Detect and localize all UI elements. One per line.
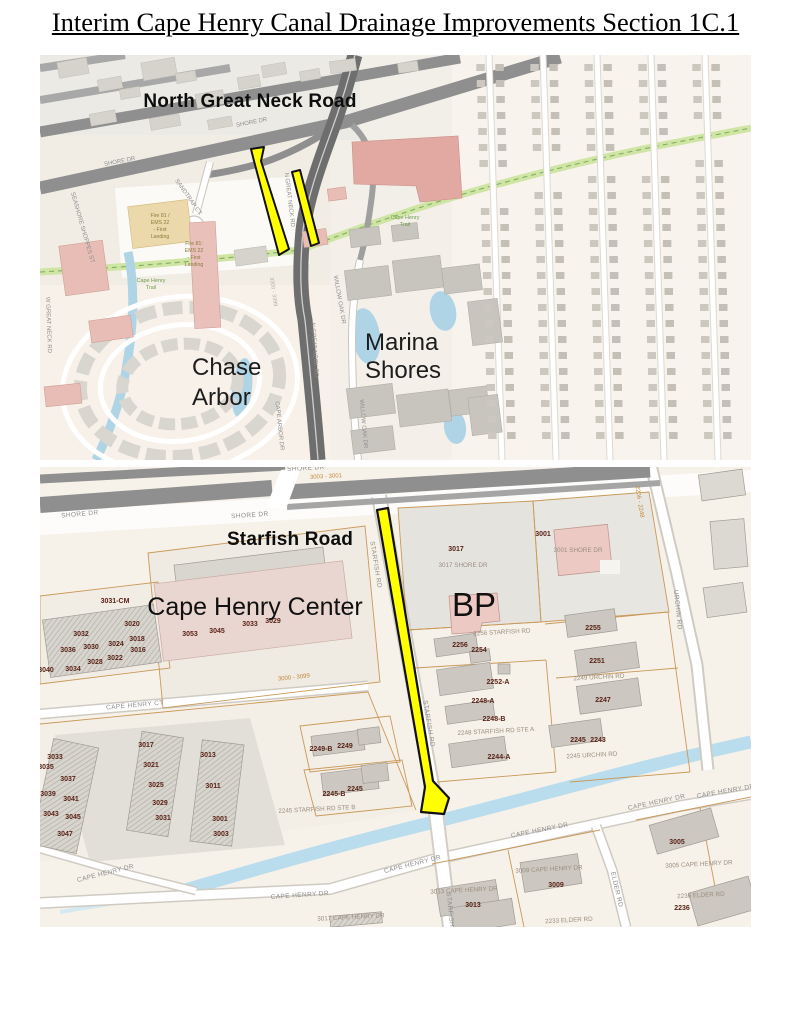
house xyxy=(642,176,651,183)
house xyxy=(506,384,515,391)
map-figure-starfish-road: SHORE DRSHORE DRSHORE DRSTARFISH RDSTARF… xyxy=(40,467,751,927)
house xyxy=(486,352,495,359)
house xyxy=(642,192,651,199)
house xyxy=(612,320,621,327)
house xyxy=(614,400,623,407)
map-label: 3045 xyxy=(209,628,225,635)
house xyxy=(669,432,678,439)
house xyxy=(719,304,728,311)
map-label: 2245-B xyxy=(323,791,346,798)
house xyxy=(478,128,487,135)
map-label: 2244-A xyxy=(488,754,511,761)
house xyxy=(507,432,515,439)
map-label: 3025 xyxy=(148,782,164,789)
house xyxy=(699,272,708,279)
house xyxy=(555,240,564,247)
map-label: 3031-CM xyxy=(101,598,130,605)
house xyxy=(478,112,487,119)
house xyxy=(482,256,491,263)
house xyxy=(590,256,599,263)
map-label: 2248-B xyxy=(483,716,506,723)
house xyxy=(587,144,596,151)
house xyxy=(485,336,494,343)
house xyxy=(496,96,505,103)
house xyxy=(640,128,649,135)
house xyxy=(531,80,540,87)
map-label: 2255 xyxy=(585,625,601,632)
house xyxy=(721,368,730,375)
house xyxy=(692,64,701,71)
map-label: 3013 xyxy=(200,752,216,759)
house xyxy=(664,272,673,279)
map2-background xyxy=(40,467,751,927)
house xyxy=(536,240,545,247)
house xyxy=(479,160,488,167)
house xyxy=(723,432,732,439)
house xyxy=(560,384,569,391)
house xyxy=(661,192,670,199)
house xyxy=(535,208,544,215)
map-label: 2249 xyxy=(337,743,353,750)
house xyxy=(658,80,667,87)
map-label: 3039 xyxy=(40,791,56,798)
house xyxy=(481,224,490,231)
house xyxy=(711,64,720,71)
house xyxy=(505,352,514,359)
house xyxy=(501,240,510,247)
house xyxy=(534,192,543,199)
house xyxy=(693,80,702,87)
house xyxy=(486,368,495,375)
house xyxy=(613,368,622,375)
house xyxy=(590,240,599,247)
map-label: 3040 xyxy=(40,667,54,674)
house xyxy=(595,400,604,407)
map-label: 3041 xyxy=(63,796,79,803)
house xyxy=(560,400,569,407)
house xyxy=(645,272,654,279)
house xyxy=(609,240,618,247)
house xyxy=(696,192,705,199)
house xyxy=(704,416,713,423)
map-label: Trail xyxy=(400,222,410,228)
house xyxy=(477,80,486,87)
map-label: EMS 22 xyxy=(185,248,204,254)
map-label: 3053 xyxy=(182,631,198,638)
chase-arbor-label-line2: Arbor xyxy=(192,384,251,411)
house xyxy=(556,272,565,279)
house xyxy=(554,208,563,215)
map-label: 3021 xyxy=(143,762,159,769)
house xyxy=(702,368,711,375)
map-label: 3013 xyxy=(465,902,481,909)
house xyxy=(476,64,485,71)
map-label: - First xyxy=(153,227,167,233)
map-label: 3005 xyxy=(669,839,685,846)
house xyxy=(715,192,724,199)
house xyxy=(586,128,595,135)
house xyxy=(532,112,541,119)
map-label: EMS 22 xyxy=(151,220,170,226)
house xyxy=(649,400,658,407)
house xyxy=(609,256,618,263)
house xyxy=(667,352,676,359)
house xyxy=(506,400,515,407)
map-label: Landing xyxy=(151,234,170,240)
house xyxy=(504,336,513,343)
map-label: 3029 xyxy=(152,800,168,807)
house xyxy=(648,368,657,375)
house xyxy=(657,64,666,71)
map2-road-label: Starfish Road xyxy=(227,529,353,550)
page-title: Interim Cape Henry Canal Drainage Improv… xyxy=(0,7,791,38)
house xyxy=(668,400,677,407)
house xyxy=(503,288,512,295)
house xyxy=(593,320,602,327)
house xyxy=(559,368,568,375)
house xyxy=(483,272,492,279)
house xyxy=(541,400,550,407)
map-label: 3034 xyxy=(65,666,81,673)
house xyxy=(539,336,548,343)
map1-road-label: North Great Neck Road xyxy=(143,91,356,112)
house xyxy=(603,64,612,71)
house xyxy=(593,336,602,343)
house xyxy=(540,352,549,359)
house xyxy=(639,96,648,103)
house xyxy=(662,224,671,231)
house xyxy=(592,304,601,311)
map-label: 3011 xyxy=(205,783,220,790)
house xyxy=(644,240,653,247)
house xyxy=(605,128,614,135)
map-label: 3037 xyxy=(60,776,76,783)
house xyxy=(665,288,674,295)
house xyxy=(537,272,546,279)
map-label: 2254 xyxy=(471,647,487,654)
house xyxy=(554,224,563,231)
map-label: Cape Henry xyxy=(391,215,420,221)
house xyxy=(649,384,658,391)
house xyxy=(611,304,620,311)
map-label: 3018 xyxy=(129,636,145,643)
map-label: 3031 xyxy=(155,815,171,822)
map-label: - First xyxy=(187,255,201,261)
house xyxy=(615,416,624,423)
house xyxy=(595,384,604,391)
house xyxy=(481,208,490,215)
house xyxy=(713,112,722,119)
house xyxy=(606,144,615,151)
house xyxy=(488,416,497,423)
house xyxy=(717,240,726,247)
house xyxy=(505,368,514,375)
house xyxy=(533,144,542,151)
house xyxy=(594,352,603,359)
map-label: 3017 xyxy=(448,546,464,553)
house xyxy=(531,96,540,103)
house xyxy=(648,352,657,359)
house xyxy=(553,192,562,199)
house xyxy=(722,400,731,407)
house xyxy=(558,320,567,327)
house xyxy=(591,272,600,279)
house xyxy=(700,304,709,311)
house xyxy=(504,320,513,327)
house xyxy=(695,160,704,167)
house xyxy=(611,288,620,295)
map-label: 3001 xyxy=(535,531,551,538)
map-label: 3009 xyxy=(548,882,564,889)
house xyxy=(592,288,601,295)
house xyxy=(702,352,711,359)
house xyxy=(497,112,506,119)
house xyxy=(532,128,541,135)
house xyxy=(588,176,597,183)
house xyxy=(665,304,674,311)
house xyxy=(502,272,511,279)
map-label: 3045 xyxy=(65,814,81,821)
house xyxy=(715,176,724,183)
map-label: Trail xyxy=(146,285,156,291)
house xyxy=(716,224,725,231)
house xyxy=(552,144,561,151)
house xyxy=(555,256,564,263)
house xyxy=(667,368,676,375)
map-label: 3032 xyxy=(73,631,89,638)
marina-shores-label-line1: Marina xyxy=(365,329,439,356)
house xyxy=(644,256,653,263)
house xyxy=(717,256,726,263)
house xyxy=(647,320,656,327)
map-label: 3033 xyxy=(242,621,258,628)
map-label: 3003 xyxy=(213,831,229,838)
house xyxy=(712,80,721,87)
map-label: 3036 xyxy=(60,647,76,654)
house xyxy=(604,96,613,103)
house xyxy=(608,224,617,231)
house xyxy=(496,80,505,87)
map-label: 3028 xyxy=(87,659,103,666)
house xyxy=(561,416,570,423)
house xyxy=(701,336,710,343)
house xyxy=(538,304,547,311)
house xyxy=(535,224,544,231)
house xyxy=(703,400,712,407)
house xyxy=(643,224,652,231)
house xyxy=(718,272,727,279)
house xyxy=(498,144,507,151)
house xyxy=(477,96,486,103)
house xyxy=(588,192,597,199)
map-label: 2248-A xyxy=(472,698,495,705)
house xyxy=(498,160,507,167)
map-label: 3016 xyxy=(130,647,146,654)
map-label: 3001 xyxy=(212,816,228,823)
map-label: Landing xyxy=(185,262,204,268)
house xyxy=(612,336,621,343)
map-label: Fire 81: xyxy=(185,241,203,247)
house xyxy=(536,256,545,263)
house xyxy=(549,64,558,71)
map-label: 3017 SHORE DR xyxy=(439,562,488,569)
house xyxy=(647,336,656,343)
map-label: 3020 xyxy=(124,621,140,628)
document-page: { "page": { "title": "Interim Cape Henry… xyxy=(0,0,791,1023)
house xyxy=(661,176,670,183)
house xyxy=(586,112,595,119)
house xyxy=(584,64,593,71)
house xyxy=(723,416,732,423)
house xyxy=(550,96,559,103)
house xyxy=(485,320,494,327)
map-label: 2245 xyxy=(347,786,363,793)
map-label: 2243 xyxy=(590,737,606,744)
house xyxy=(596,416,605,423)
map-label: 3017 xyxy=(138,742,154,749)
marina-shores-label-line2: Shores xyxy=(365,357,441,384)
house xyxy=(668,384,677,391)
house xyxy=(539,320,548,327)
house xyxy=(703,384,712,391)
house xyxy=(659,128,668,135)
house xyxy=(542,432,551,439)
house xyxy=(608,208,617,215)
house xyxy=(605,112,614,119)
house xyxy=(663,256,672,263)
house xyxy=(557,304,566,311)
map-label: 3047 xyxy=(57,831,73,838)
house xyxy=(540,368,549,375)
house xyxy=(487,400,496,407)
map-label: 3033 xyxy=(47,754,63,761)
house xyxy=(497,128,506,135)
map-label: 3030 xyxy=(83,644,99,651)
map-label: 3043 xyxy=(43,811,59,818)
house xyxy=(704,432,713,439)
house xyxy=(662,208,671,215)
map-label: 3001 SHORE DR xyxy=(554,547,603,554)
map-label: 2245 xyxy=(570,737,586,744)
house xyxy=(538,288,547,295)
house xyxy=(639,80,648,87)
house xyxy=(650,416,659,423)
house xyxy=(550,80,559,87)
house xyxy=(610,272,619,279)
house xyxy=(594,368,603,375)
house xyxy=(646,288,655,295)
house xyxy=(716,208,725,215)
map-figure-north-great-neck: SHORE DRSHORE DRN GREAT NECK RDN GREAT N… xyxy=(40,55,751,460)
house xyxy=(541,384,550,391)
house xyxy=(614,384,623,391)
house xyxy=(693,96,702,103)
house xyxy=(697,208,706,215)
house xyxy=(663,240,672,247)
house xyxy=(607,192,616,199)
map-label: 3022 xyxy=(107,655,123,662)
house xyxy=(643,208,652,215)
house xyxy=(714,160,723,167)
house xyxy=(484,304,493,311)
house xyxy=(495,64,504,71)
house xyxy=(551,128,560,135)
house xyxy=(487,384,496,391)
house xyxy=(607,176,616,183)
map-label: 2236 xyxy=(674,905,690,912)
map-label: Cape Henry xyxy=(137,278,166,284)
house xyxy=(719,288,728,295)
house xyxy=(666,320,675,327)
house xyxy=(698,256,707,263)
house xyxy=(585,80,594,87)
house xyxy=(669,416,678,423)
house xyxy=(638,64,647,71)
map-label: 2247 xyxy=(595,697,611,704)
house xyxy=(640,112,649,119)
house xyxy=(720,336,729,343)
house xyxy=(488,432,497,439)
map-label: 2251 xyxy=(589,658,605,665)
map-label: 2249-B xyxy=(310,746,333,753)
house xyxy=(551,112,560,119)
house xyxy=(646,304,655,311)
house xyxy=(604,80,613,87)
house xyxy=(500,208,509,215)
house xyxy=(589,224,598,231)
house xyxy=(712,96,721,103)
house xyxy=(700,288,709,295)
house xyxy=(585,96,594,103)
map-label: 2252-A xyxy=(487,679,510,686)
house xyxy=(558,336,567,343)
house xyxy=(658,96,667,103)
house xyxy=(722,384,731,391)
house xyxy=(720,320,729,327)
house xyxy=(503,304,512,311)
house xyxy=(482,240,491,247)
house xyxy=(697,224,706,231)
house xyxy=(694,112,703,119)
house xyxy=(500,224,509,231)
map-label: 2256 xyxy=(452,642,468,649)
map-label: Fire 81 / xyxy=(150,213,170,219)
house xyxy=(666,336,675,343)
house xyxy=(659,112,668,119)
house xyxy=(701,320,710,327)
house xyxy=(559,352,568,359)
house xyxy=(507,416,515,423)
house xyxy=(501,256,510,263)
house xyxy=(613,352,622,359)
house xyxy=(479,144,488,151)
bp-label: BP xyxy=(452,586,496,623)
house xyxy=(589,208,598,215)
chase-arbor-label-line1: Chase xyxy=(192,354,261,381)
house xyxy=(698,240,707,247)
house xyxy=(696,176,705,183)
house xyxy=(561,432,570,439)
house xyxy=(596,432,605,439)
cape-henry-center-label: Cape Henry Center xyxy=(147,593,362,621)
map-label: 3024 xyxy=(108,641,124,648)
house xyxy=(721,352,730,359)
house xyxy=(650,432,659,439)
house xyxy=(615,432,624,439)
map-label: 3035 xyxy=(40,764,54,771)
house xyxy=(484,288,493,295)
house xyxy=(542,416,551,423)
